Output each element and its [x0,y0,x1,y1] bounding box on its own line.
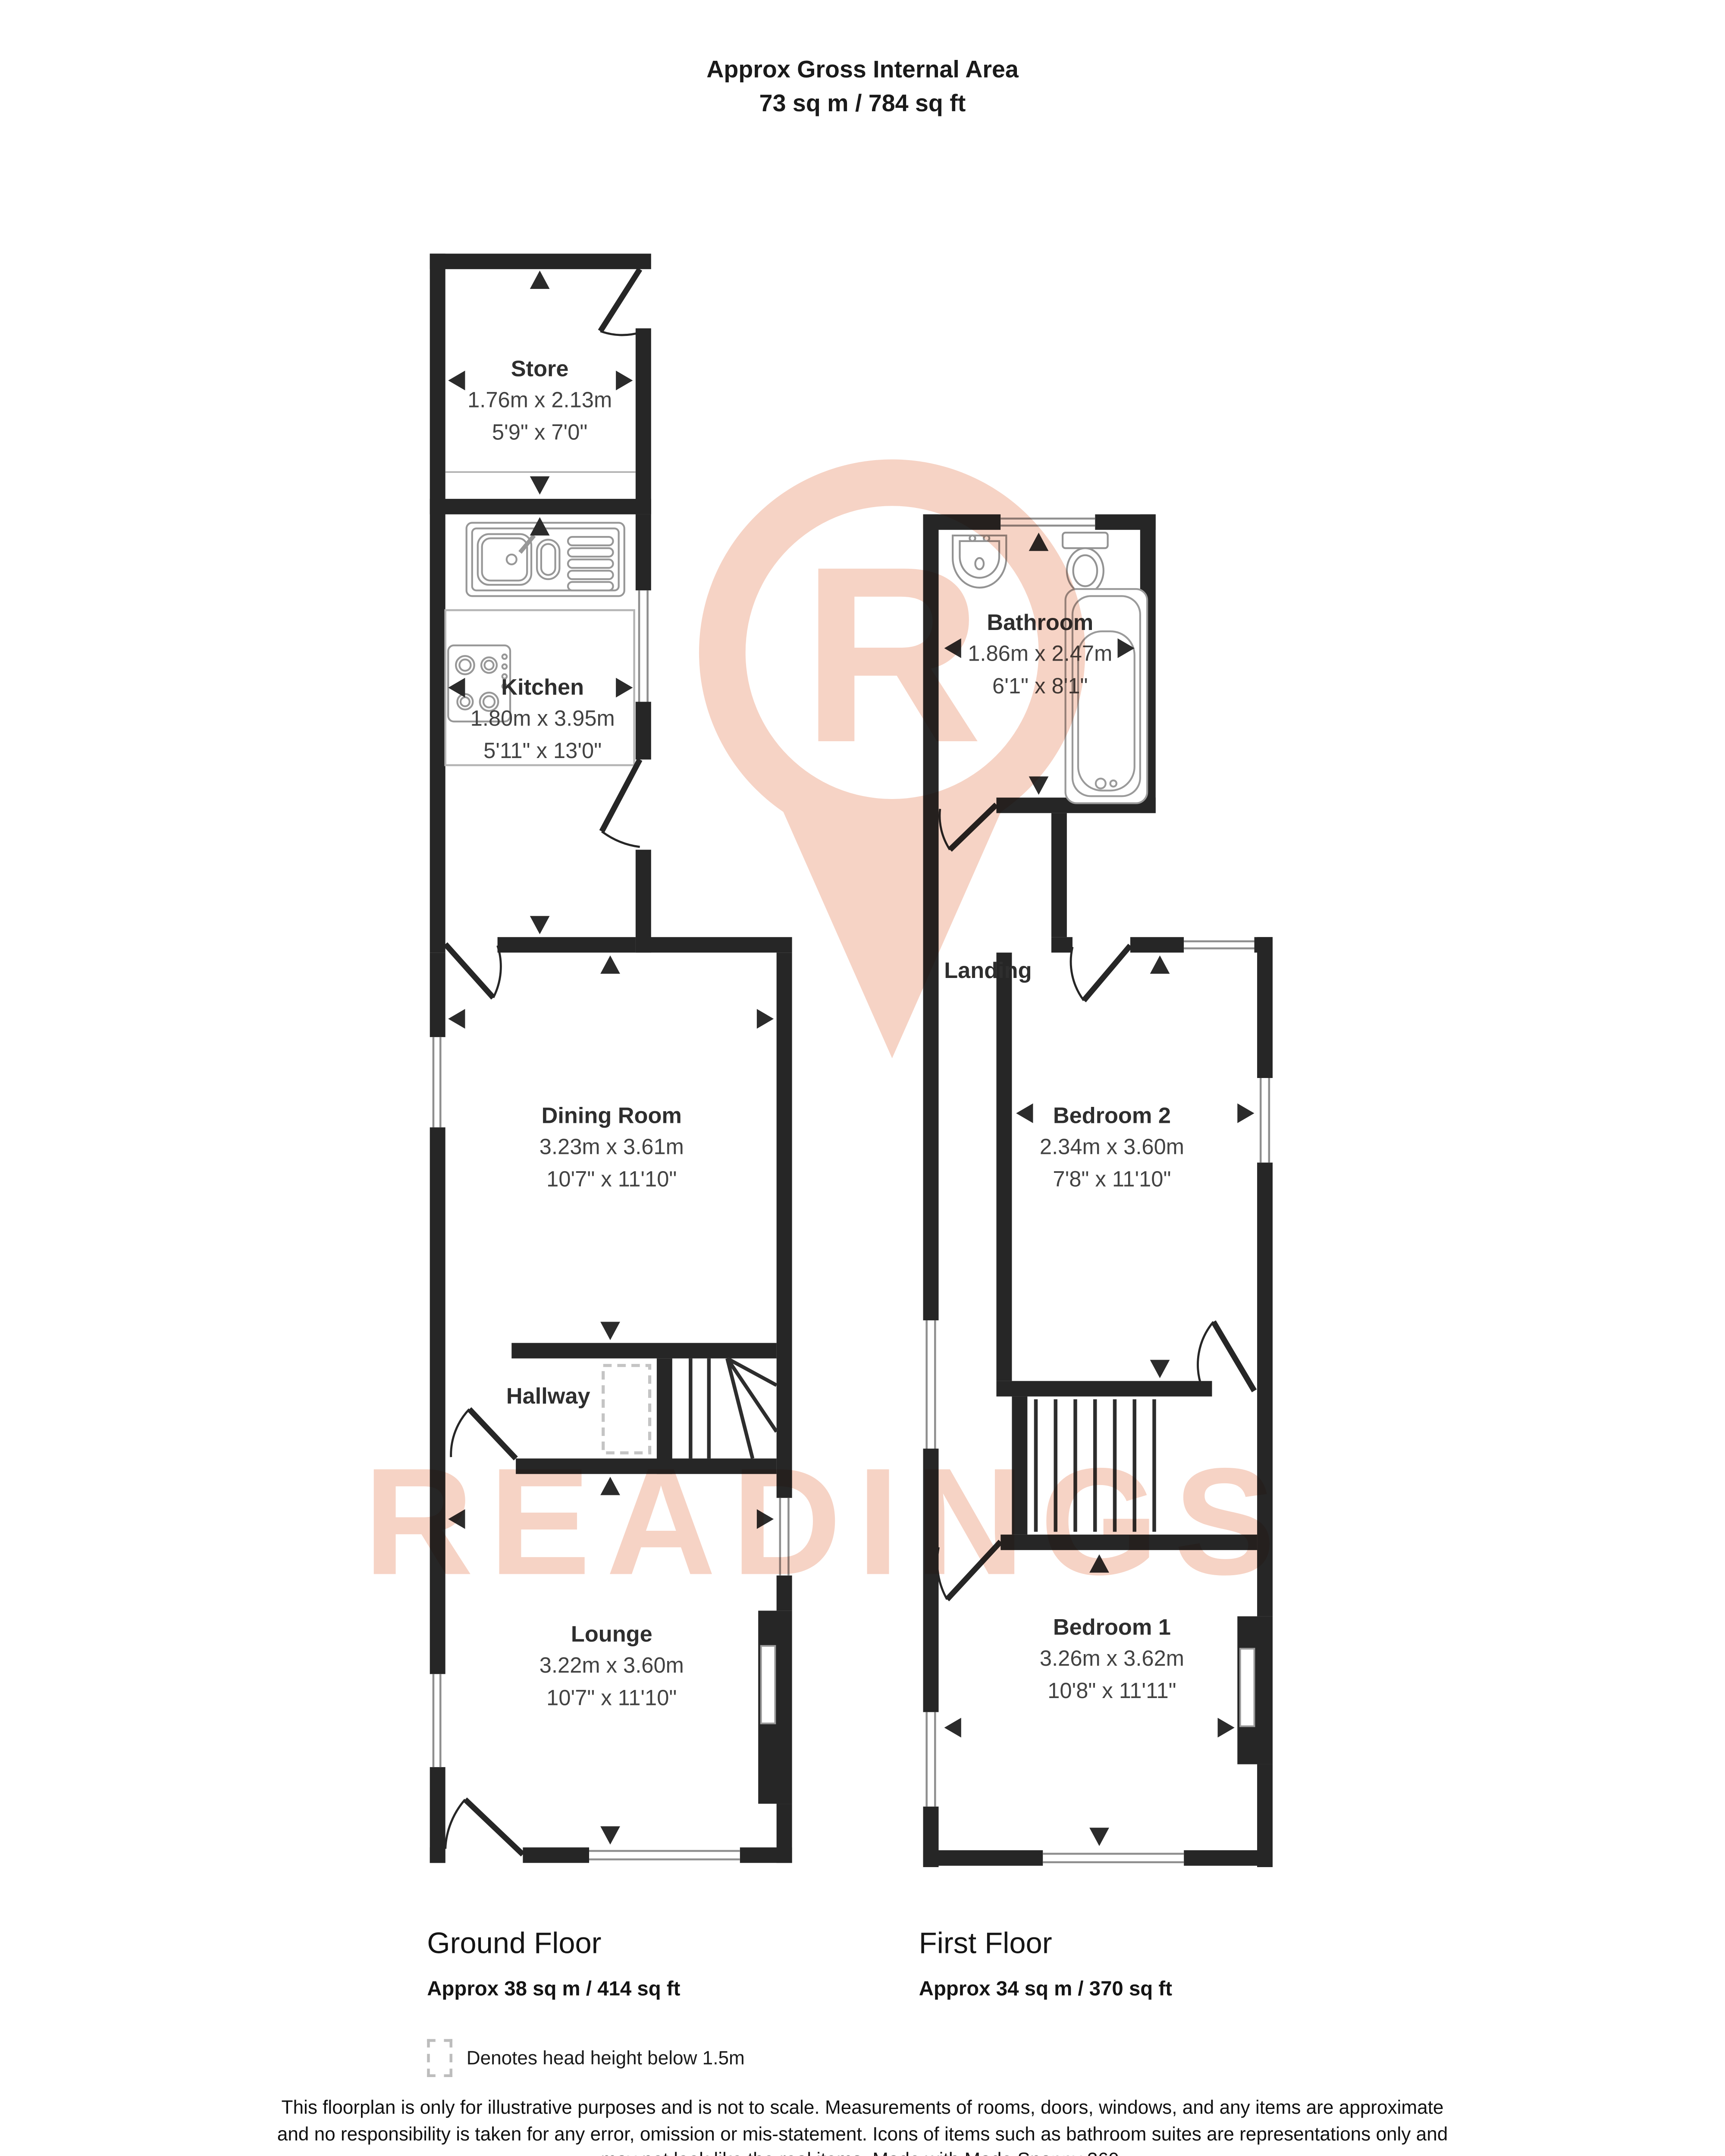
page-title: Approx Gross Internal Area [0,56,1725,85]
legend: Denotes head height below 1.5m [427,2039,745,2077]
disclaimer: This floorplan is only for illustrative … [0,2096,1725,2156]
head-height-legend-icon [427,2039,452,2077]
agency-watermark: READINGS [364,1446,1378,1598]
room-label-kitchen: Kitchen 1.80m x 3.95m 5'11" x 13'0" [470,674,615,768]
total-area: 73 sq m / 784 sq ft [0,90,1725,118]
room-label-store: Store 1.76m x 2.13m 5'9" x 7'0" [467,355,612,450]
room-label-bedroom-2: Bedroom 2 2.34m x 3.60m 7'8" x 11'10" [1040,1102,1184,1197]
room-label-bedroom-1: Bedroom 1 3.26m x 3.62m 10'8" x 11'11" [1040,1614,1184,1708]
page-header: Approx Gross Internal Area 73 sq m / 784… [0,56,1725,119]
ground-floor-caption: Ground Floor Approx 38 sq m / 414 sq ft [427,1928,680,2001]
logo-letter: R [802,514,983,795]
legend-text: Denotes head height below 1.5m [467,2047,745,2068]
room-label-dining-room: Dining Room 3.23m x 3.61m 10'7" x 11'10" [539,1102,684,1197]
first-floor-caption: First Floor Approx 34 sq m / 370 sq ft [919,1928,1172,2001]
disclaimer-line: This floorplan is only for illustrative … [0,2096,1725,2122]
floorplan-page: Approx Gross Internal Area 73 sq m / 784… [0,0,1725,2156]
disclaimer-line: may not look like the real items. Made w… [0,2147,1725,2156]
disclaimer-line: and no responsibility is taken for any e… [0,2122,1725,2147]
agency-logo-pin-icon: R [698,455,1087,1075]
room-label-hallway: Hallway [506,1382,590,1413]
room-label-lounge: Lounge 3.22m x 3.60m 10'7" x 11'10" [539,1620,684,1715]
